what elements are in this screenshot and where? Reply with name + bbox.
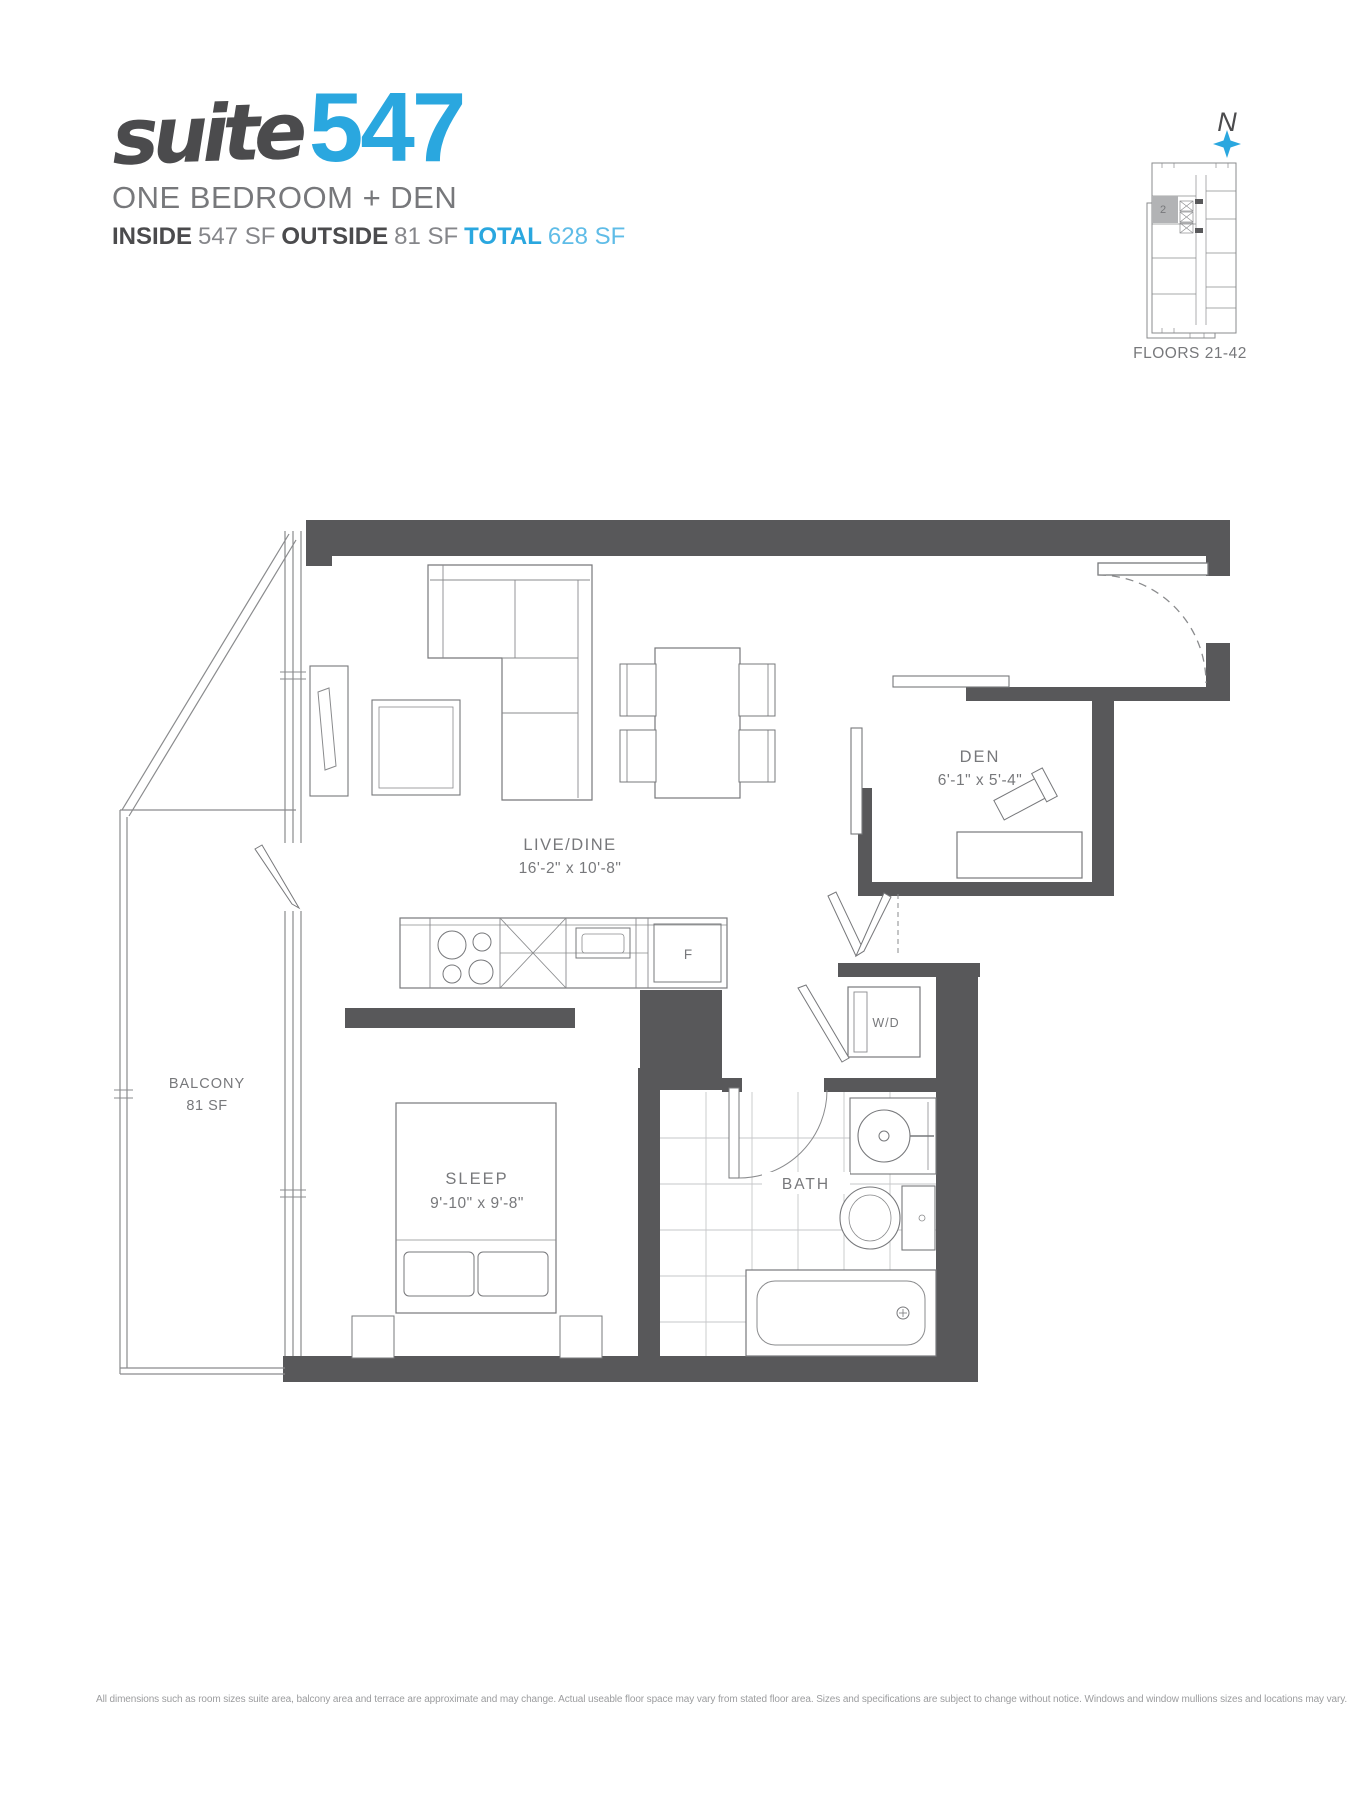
den-dims: 6'-1" x 5'-4" [938,772,1023,789]
key-plan-core-block [1195,228,1203,233]
bedroom-furniture [352,1103,602,1358]
bath-sink-basin [858,1110,910,1162]
nightstand [352,1316,394,1358]
dining-table [655,648,740,798]
den-desk [957,832,1082,878]
balcony-rail [114,810,296,1374]
living-dining-furniture [310,565,775,800]
floor-plan-canvas: N [0,0,1350,1800]
bed-pillow [404,1252,474,1296]
wd-label: W/D [872,1016,899,1030]
fridge-label: F [684,947,692,962]
nightstand [560,1316,602,1358]
window-wall [122,531,306,1356]
bathtub [746,1270,936,1356]
den-sliding-door-left [851,728,862,834]
entry-door-leaf [1098,563,1208,575]
washer-dryer: W/D [798,985,920,1062]
livedine-dims: 16'-2" x 10'-8" [519,860,622,877]
key-plan: N [1133,107,1247,362]
sleep-dims: 9'-10" x 9'-8" [430,1195,524,1212]
key-plan-unit-number: 2 [1160,204,1166,216]
bath-label: BATH [782,1176,830,1193]
sleep-label: SLEEP [445,1170,508,1188]
bath-fixtures [729,1088,936,1356]
floors-label: FLOORS 21-42 [1133,345,1247,362]
kitchen: F [400,918,727,988]
key-plan-core-block [1195,199,1203,204]
coffee-table [372,700,460,795]
den-label: DEN [960,748,1001,766]
bath-door-leaf [729,1088,739,1178]
closet-bifold-door [828,892,898,956]
den-sliding-door-top [893,676,1009,687]
toilet-tank [902,1186,935,1250]
balcony-area: 81 SF [186,1098,227,1114]
disclaimer-text: All dimensions such as room sizes suite … [96,1694,1296,1705]
key-plan-outline [1147,163,1236,338]
livedine-label: LIVE/DINE [523,836,616,854]
balcony-label: BALCONY [169,1076,245,1092]
entry-door-swing-arc [1098,575,1206,683]
suite-floor-plan: W/D [114,520,1230,1382]
bed-pillow [478,1252,548,1296]
wd-door-leaf [798,985,849,1062]
